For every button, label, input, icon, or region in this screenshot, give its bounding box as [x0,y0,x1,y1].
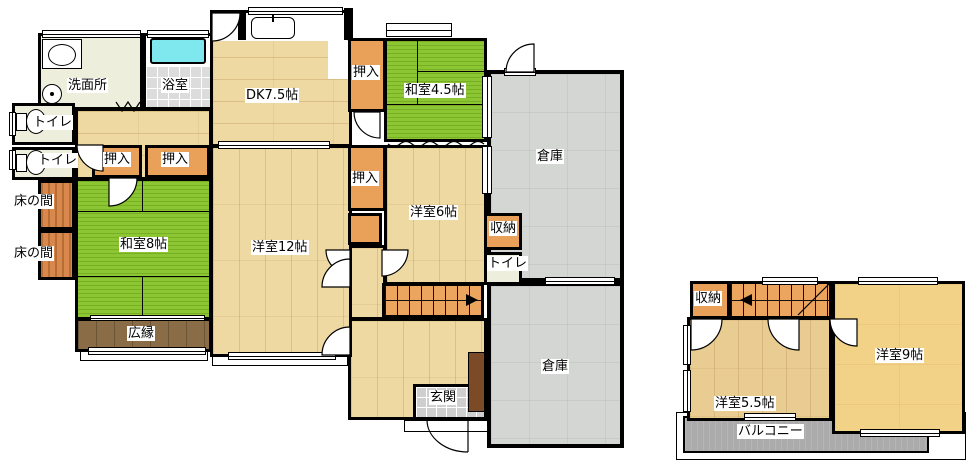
room-label-toilet-2: トイレ [37,153,78,168]
room-label-closet-mid: 押入 [351,171,379,186]
sliding-door [482,146,492,194]
staircase-2f [728,281,832,319]
window [228,352,336,360]
room-label-warehouse-bottom: 倉庫 [541,359,569,374]
room-label-tokonoma-1: 床の間 [13,194,54,209]
room-label-washitsu8: 和室8帖 [119,237,168,252]
window [858,277,938,285]
mat-line [142,178,143,211]
room-label-yoshitsu6: 洋室6帖 [409,205,458,220]
room-label-toilet-3: トイレ [487,256,528,271]
sliding-door [218,141,330,149]
wall-stub [344,8,353,40]
washbasin-icon [42,39,82,69]
room-label-closet-b: 押入 [161,152,189,167]
mat-line [417,71,487,72]
room-label-yoshitsu55: 洋室5.5帖 [714,396,776,411]
room-label-warehouse-top: 倉庫 [536,149,564,164]
bathtub-icon [150,38,206,64]
room-dk [210,10,352,147]
sliding-door [90,315,205,321]
window [88,347,206,355]
room-warehouse-top [487,70,624,282]
room-label-veranda: 広縁 [127,326,155,341]
window [545,277,615,285]
kitchen-counter-side [328,41,350,79]
room-label-storage-1f: 収納 [489,221,517,236]
window [9,112,16,136]
shoe-cabinet [468,352,485,412]
room-label-dk: DK7.5帖 [245,88,299,103]
room-label-storage-2f: 収納 [694,291,722,306]
window [683,370,691,412]
room-label-tokonoma-2: 床の間 [13,246,54,261]
window [683,325,691,365]
window [9,150,16,170]
door-arc [354,112,380,138]
window [860,429,940,437]
hallway-stair-side [348,245,386,320]
room-bath [143,33,213,110]
mat-line [75,211,212,212]
window [147,30,209,38]
window [248,7,343,15]
floor-plan: 洗面所 浴室 DK7.5帖 押入 和室4.5帖 倉庫 トイレ トイレ 床の間 床… [0,0,975,464]
wall-stub [238,10,246,40]
room-label-washitsu45: 和室4.5帖 [404,83,466,98]
water-heater-icon [42,84,62,104]
room-label-bath: 浴室 [161,78,189,93]
closet-small [348,213,382,245]
staircase-1f [382,283,484,318]
room-label-washroom: 洗面所 [67,78,108,93]
room-label-closet-a: 押入 [103,152,131,167]
room-label-entrance: 玄関 [429,390,457,405]
room-label-yoshitsu12: 洋室12帖 [251,240,309,255]
bay-window [386,23,452,37]
mat-line [386,104,487,105]
window [42,30,141,38]
room-label-closet-top: 押入 [352,65,380,80]
warehouse-door-gap [504,68,536,76]
mat-line [75,276,212,277]
sliding-door [482,76,492,138]
room-label-yoshitsu9: 洋室9帖 [875,348,924,363]
room-label-balcony: バルコニー [737,424,804,439]
entrance-porch-outline [404,420,488,432]
window [744,413,796,421]
window [762,277,818,285]
room-label-toilet-1: トイレ [32,115,73,130]
mat-line [142,276,143,320]
